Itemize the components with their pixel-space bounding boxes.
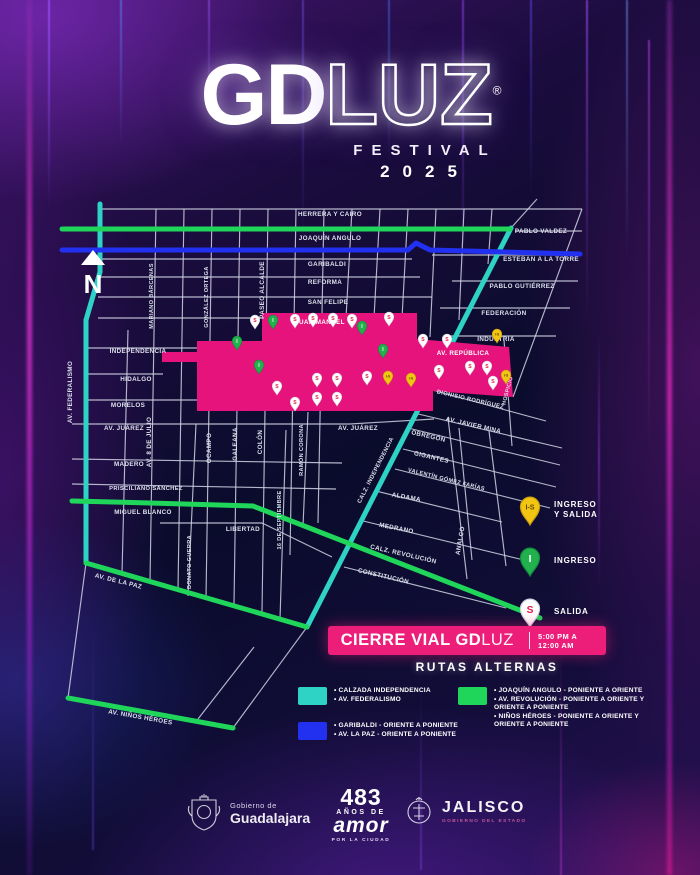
route-av-revolucion — [72, 501, 540, 618]
svg-text:I-S: I-S — [504, 373, 509, 377]
street-label: GALEANA — [232, 427, 239, 461]
ruta-group-green: • JOAQUÍN ANGULO - PONIENTE A ORIENTE • … — [458, 687, 652, 730]
jalisco-logo: JALISCO GOBIERNO DEL ESTADO — [404, 794, 527, 828]
svg-text:S: S — [315, 395, 319, 401]
rutas-alternas-title: RUTAS ALTERNAS — [412, 660, 562, 674]
svg-text:S: S — [275, 384, 279, 390]
street-label: ANALCO — [455, 526, 467, 556]
ingreso-pin: I — [520, 548, 539, 576]
street-label: MIGUEL BLANCO — [114, 509, 172, 516]
street-label: INDEPENDENCIA — [110, 348, 167, 355]
green-route-swatch — [458, 687, 487, 705]
banner-divider — [529, 632, 531, 649]
svg-text:S: S — [421, 337, 425, 343]
pin-legend: I-S INGRESO Y SALIDA I INGRESO S SALIDA — [514, 492, 598, 630]
svg-text:S: S — [335, 395, 339, 401]
svg-text:S: S — [491, 379, 495, 385]
street-label: MORELOS — [111, 402, 145, 409]
street-label: MADERO — [114, 461, 144, 468]
ruta-lines: • CALZADA INDEPENDENCIA • AV. FEDERALISM… — [334, 687, 431, 704]
street-label: MARIANO BÁRCENAS — [148, 263, 155, 329]
guadalajara-wordmark: Gobierno de Guadalajara — [230, 801, 310, 826]
street-label: HIDALGO — [120, 376, 151, 383]
legend-item-ingreso: I INGRESO — [514, 543, 598, 579]
street-line — [511, 199, 537, 228]
svg-text:S: S — [485, 364, 489, 370]
svg-text:S: S — [527, 605, 534, 616]
gob-line: Gobierno de — [230, 801, 310, 810]
svg-text:S: S — [335, 376, 339, 382]
banner-schedule: 5:00 PM A 12:00 AM — [538, 632, 606, 650]
street-label: REFORMA — [308, 279, 342, 286]
483-number: 483 — [318, 786, 404, 808]
salida-pin-icon: S — [514, 594, 546, 630]
salida-pin: S — [250, 315, 260, 329]
street-label: PASEO ALCALDE — [259, 261, 266, 319]
ruta-group-blue: • GARIBALDI - ORIENTE A PONIENTE • AV. L… — [298, 722, 458, 740]
svg-text:S: S — [311, 316, 315, 322]
ruta-line: • AV. LA PAZ - ORIENTE A PONIENTE — [334, 731, 458, 740]
guadalajara-crest-icon — [186, 792, 222, 834]
ruta-lines: • JOAQUÍN ANGULO - PONIENTE A ORIENTE • … — [494, 687, 652, 730]
svg-text:S: S — [293, 317, 297, 323]
street-label: ALDAMA — [391, 492, 421, 504]
legend-item-salida: S SALIDA — [514, 594, 598, 630]
street-line — [122, 330, 128, 574]
legend-label: INGRESO Y SALIDA — [554, 500, 598, 520]
street-label: PRISCILIANO SÁNCHEZ — [109, 485, 183, 492]
street-line — [513, 209, 582, 397]
road-closure-banner: CIERRE VIAL GDLUZ 5:00 PM A 12:00 AM — [328, 626, 606, 655]
poster: GDLUZ® FESTIVAL 2025 HERRERA Y CAIROJOAQ… — [0, 0, 700, 875]
legend-label: SALIDA — [554, 607, 589, 617]
guadalajara-logo: Gobierno de Guadalajara — [186, 792, 310, 834]
svg-text:S: S — [387, 315, 391, 321]
amor-word: amor — [318, 816, 404, 836]
street-label: OCAMPO — [206, 433, 213, 463]
ruta-group-cyan: • CALZADA INDEPENDENCIA • AV. FEDERALISM… — [298, 687, 431, 705]
banner-title: CIERRE VIAL GDLUZ — [328, 631, 527, 650]
ruta-line: • NIÑOS HÉROES - PONIENTE A ORIENTE Y OR… — [494, 713, 652, 730]
banner-time-start: 5:00 PM A — [538, 632, 596, 641]
street-label: 16 DE SEPTIEMBRE — [277, 490, 283, 549]
jalisco-label: JALISCO — [442, 799, 527, 817]
street-label: JOAQUÍN ANGULO — [299, 233, 361, 242]
ingreso-salida-pin: I-S — [520, 497, 539, 525]
483-anos-logo: 483 AÑOS DE amor POR LA CIUDAD — [318, 786, 404, 843]
street-line — [262, 523, 332, 557]
route-ninos-heroes — [68, 698, 233, 728]
legend-line: SALIDA — [554, 607, 589, 617]
street-label: OBREGÓN — [410, 427, 446, 444]
svg-text:S: S — [468, 364, 472, 370]
svg-text:I-S: I-S — [409, 376, 414, 380]
street-label: GONZÁLEZ ORTEGA — [203, 266, 210, 328]
street-label: PABLO GUTIÉRREZ — [490, 281, 555, 290]
banner-title-bold: CIERRE VIAL GD — [341, 631, 482, 649]
street-label: CONSTITUCIÓN — [357, 565, 410, 586]
ruta-line: • AV. FEDERALISMO — [334, 696, 431, 705]
street-label: COLÓN — [255, 430, 264, 455]
ruta-lines: • GARIBALDI - ORIENTE A PONIENTE • AV. L… — [334, 722, 458, 739]
svg-text:S: S — [331, 316, 335, 322]
blue-route-swatch — [298, 722, 327, 740]
street-label: LIBERTAD — [226, 526, 260, 533]
street-label: AV. JUÁREZ — [338, 423, 378, 432]
svg-text:S: S — [445, 337, 449, 343]
street-line — [68, 563, 86, 698]
svg-text:S: S — [437, 368, 441, 374]
street-label: DONATO GUERRA — [187, 535, 193, 589]
gob-line: Guadalajara — [230, 810, 310, 826]
jalisco-sublabel: GOBIERNO DEL ESTADO — [442, 819, 527, 824]
street-label: AV. 8 DE JULIO — [146, 417, 153, 467]
street-label: HERRERA Y CAIRO — [298, 211, 362, 218]
street-label: SAN FELIPE — [308, 299, 349, 306]
street-label: FEDERACIÓN — [481, 308, 526, 317]
footer: Gobierno de Guadalajara 483 AÑOS DE amor… — [0, 786, 700, 856]
ruta-line: • GARIBALDI - ORIENTE A PONIENTE — [334, 722, 458, 731]
ruta-line: • AV. REVOLUCIÓN - PONIENTE A ORIENTE Y … — [494, 696, 652, 713]
street-label: GARIBALDI — [308, 261, 346, 268]
salida-pin: S — [520, 599, 539, 627]
street-label: AV. JAVIER MINA — [445, 416, 502, 436]
street-line — [350, 419, 434, 424]
street-label: AV. REPÚBLICA — [437, 348, 490, 357]
legend-item-ingreso-salida: I-S INGRESO Y SALIDA — [514, 492, 598, 528]
svg-text:N: N — [84, 269, 103, 299]
street-line — [488, 209, 492, 264]
legend-line: INGRESO — [554, 500, 598, 510]
jalisco-crest-icon — [404, 794, 434, 828]
street-map: HERRERA Y CAIROJOAQUÍN ANGULOPABLO VALDE… — [0, 0, 700, 875]
cyan-route-swatch — [298, 687, 327, 705]
svg-text:I: I — [529, 554, 532, 565]
jalisco-wordmark: JALISCO GOBIERNO DEL ESTADO — [442, 799, 527, 824]
street-line — [233, 627, 307, 728]
street-line — [459, 209, 464, 320]
street-label: MEDRANO — [378, 522, 414, 536]
street-line — [198, 647, 254, 719]
svg-text:I-S: I-S — [386, 374, 391, 378]
ingreso-salida-pin-icon: I-S — [514, 492, 546, 528]
svg-text:S: S — [315, 376, 319, 382]
banner-title-thin: LUZ — [481, 631, 514, 649]
ruta-line: • CALZADA INDEPENDENCIA — [334, 687, 431, 696]
legend-line: Y SALIDA — [554, 510, 598, 520]
route-av-la-paz — [86, 563, 307, 627]
svg-text:S: S — [293, 400, 297, 406]
street-label: GIGANTES — [413, 450, 449, 465]
street-label: VALENTÍN GÓMEZ FARÍAS — [407, 466, 486, 493]
banner-time-end: 12:00 AM — [538, 641, 596, 650]
svg-text:S: S — [350, 317, 354, 323]
legend-label: INGRESO — [554, 556, 597, 566]
street-label: ESTEBAN A LA TORRE — [503, 256, 579, 263]
ruta-line: • JOAQUÍN ANGULO - PONIENTE A ORIENTE — [494, 687, 652, 696]
legend-line: INGRESO — [554, 556, 597, 566]
street-label: RAMÓN CORONA — [297, 424, 305, 476]
street-line — [402, 209, 408, 318]
svg-text:S: S — [253, 318, 257, 324]
street-label: PABLO VALDEZ — [515, 228, 567, 235]
svg-text:I-S: I-S — [495, 332, 500, 336]
svg-text:I-S: I-S — [525, 504, 534, 512]
svg-text:S: S — [365, 374, 369, 380]
por-la-ciudad-label: POR LA CIUDAD — [318, 838, 404, 843]
street-line — [374, 209, 380, 318]
ingreso-pin-icon: I — [514, 543, 546, 579]
street-label: AV. FEDERALISMO — [67, 361, 74, 423]
street-label: AV. JUÁREZ — [104, 423, 144, 432]
